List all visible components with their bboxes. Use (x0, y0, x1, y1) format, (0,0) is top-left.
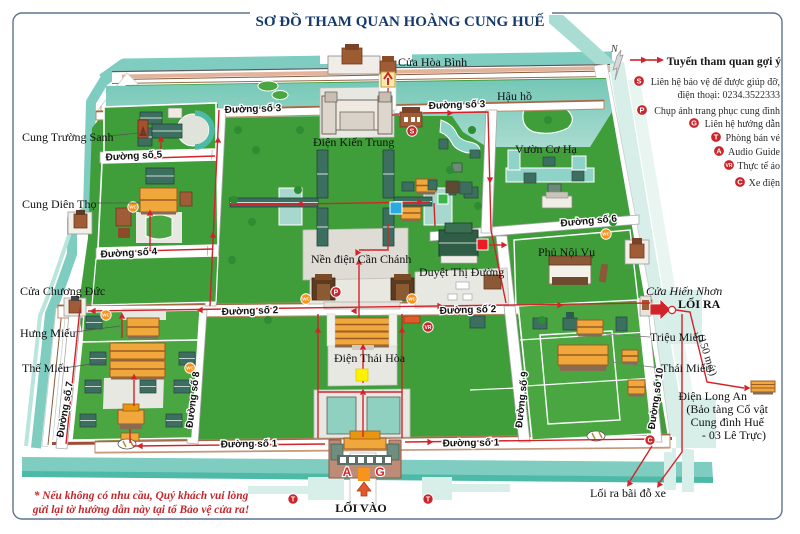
svg-text:Cửa Hiến Nhơn: Cửa Hiến Nhơn (646, 284, 722, 298)
svg-text:Liên hệ bảo vệ để được giúp đỡ: Liên hệ bảo vệ để được giúp đỡ, (651, 77, 780, 88)
svg-text:WC: WC (602, 232, 610, 237)
svg-text:P: P (334, 290, 339, 297)
svg-text:Điện Kiến Trung: Điện Kiến Trung (313, 135, 394, 149)
svg-text:T: T (714, 133, 719, 142)
svg-text:* Nếu không có nhu cầu, Quý kh: * Nếu không có nhu cầu, Quý khách vui lò… (34, 490, 249, 502)
svg-text:Cửa Chương Đức: Cửa Chương Đức (20, 284, 105, 298)
svg-text:A: A (343, 465, 352, 479)
svg-text:Đường số 1: Đường số 1 (443, 437, 500, 450)
svg-text:Cung Trường Sanh: Cung Trường Sanh (22, 130, 114, 144)
svg-text:P: P (639, 106, 644, 115)
svg-text:Đường số 1: Đường số 1 (221, 438, 278, 451)
svg-text:WC: WC (102, 313, 110, 318)
svg-text:WC: WC (408, 297, 416, 302)
svg-text:LỐI VÀO: LỐI VÀO (335, 500, 386, 515)
svg-text:C: C (647, 438, 652, 445)
svg-text:Duyệt Thị Đường: Duyệt Thị Đường (419, 265, 504, 279)
svg-text:Chụp ảnh trang phục cung đình: Chụp ảnh trang phục cung đình (654, 106, 780, 117)
svg-text:Liên hệ hướng dẫn: Liên hệ hướng dẫn (705, 119, 780, 130)
svg-text:G: G (375, 465, 384, 479)
svg-text:Nền điện Cần Chánh: Nền điện Cần Chánh (311, 252, 411, 266)
svg-text:- 03 Lê Trực): - 03 Lê Trực) (702, 428, 766, 442)
svg-text:Hưng Miếu: Hưng Miếu (20, 326, 76, 340)
svg-text:Cung đình Huế: Cung đình Huế (691, 415, 765, 429)
svg-text:SƠ ĐỒ THAM QUAN HOÀNG CUNG HUẾ: SƠ ĐỒ THAM QUAN HOÀNG CUNG HUẾ (256, 12, 545, 30)
svg-text:N: N (610, 44, 619, 55)
svg-text:Phòng bán vé: Phòng bán vé (726, 133, 781, 144)
svg-text:Audio Guide: Audio Guide (728, 147, 781, 158)
svg-text:A: A (716, 147, 722, 156)
svg-text:Vườn Cơ Hạ: Vườn Cơ Hạ (515, 142, 578, 156)
svg-text:WC: WC (186, 366, 194, 371)
svg-text:Thực tế ảo: Thực tế ảo (737, 161, 780, 172)
svg-text:Đường số 3: Đường số 3 (224, 102, 281, 116)
svg-text:Cửa Hòa Bình: Cửa Hòa Bình (398, 55, 467, 69)
svg-text:Thế Miếu: Thế Miếu (22, 361, 69, 375)
svg-text:Điện Thái Hòa: Điện Thái Hòa (334, 351, 406, 365)
svg-text:Cung Diên Thọ: Cung Diên Thọ (22, 197, 96, 211)
svg-text:Hậu hồ: Hậu hồ (497, 89, 532, 103)
svg-text:S: S (636, 77, 641, 86)
svg-text:Tuyến tham quan gợi ý: Tuyến tham quan gợi ý (667, 55, 781, 68)
svg-text:Phủ Nội Vụ: Phủ Nội Vụ (538, 245, 595, 259)
svg-text:Xe điện: Xe điện (749, 178, 780, 189)
svg-text:Điện Long An: Điện Long An (678, 389, 747, 403)
svg-text:C: C (737, 178, 743, 187)
svg-text:VR: VR (425, 325, 432, 331)
svg-text:T: T (426, 497, 431, 504)
svg-text:VR: VR (726, 163, 733, 169)
svg-text:LỐI RA: LỐI RA (678, 296, 721, 311)
svg-text:S: S (410, 129, 415, 136)
svg-text:điện thoại: 0234.3522333: điện thoại: 0234.3522333 (678, 90, 781, 101)
svg-text:Lối ra bãi đỗ xe: Lối ra bãi đỗ xe (590, 486, 666, 500)
svg-text:T: T (291, 497, 296, 504)
svg-text:WC: WC (302, 297, 310, 302)
svg-text:Đường số 2: Đường số 2 (439, 303, 496, 317)
svg-text:Đường số 2: Đường số 2 (221, 304, 278, 318)
svg-text:Đường số 3: Đường số 3 (428, 98, 485, 112)
svg-text:WC: WC (129, 205, 137, 210)
svg-text:gửi lại tờ hướng dẫn này tại t: gửi lại tờ hướng dẫn này tại tổ Bảo vệ c… (32, 504, 250, 516)
svg-text:(Bảo tàng Cổ vật: (Bảo tàng Cổ vật (686, 402, 768, 416)
svg-text:G: G (691, 119, 697, 128)
